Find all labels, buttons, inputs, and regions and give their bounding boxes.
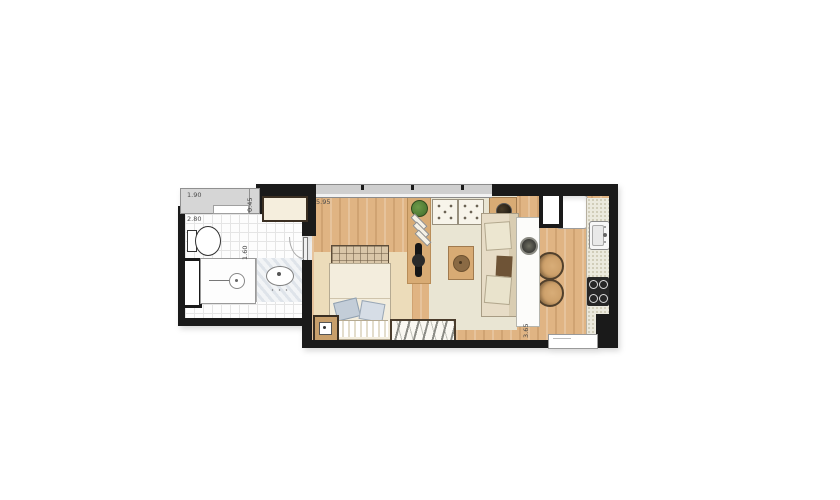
table-dot: [459, 261, 462, 264]
sink-knob: [604, 226, 606, 228]
wall: [178, 318, 312, 326]
burner: [589, 294, 598, 303]
entry-door-line: [553, 338, 571, 339]
sink-faucet: [603, 233, 607, 237]
floor-plan: 1.90 2.80 0.45 1.60 5.95 3.65: [0, 0, 840, 500]
toilet: [195, 226, 221, 256]
shower-tray: [266, 266, 294, 286]
pouf: [432, 199, 458, 225]
wall: [596, 314, 618, 348]
bed-skirt: [332, 320, 388, 337]
tv-stand: [412, 254, 425, 267]
sofa-cushion: [484, 275, 512, 305]
counter-bowl: [520, 237, 538, 255]
tv-console: [407, 196, 431, 284]
lamp-dot: [323, 326, 326, 329]
bar-stool: [536, 279, 564, 307]
headboard: [331, 245, 389, 265]
bathroom-window: [213, 205, 249, 214]
window-mullion: [411, 185, 414, 190]
window-mullion: [461, 185, 464, 190]
bar-counter: [516, 217, 540, 327]
burner: [599, 280, 608, 289]
burner: [589, 280, 598, 289]
closet-cabinet: [262, 196, 308, 222]
sink-knob: [604, 241, 606, 243]
blanket-fold: [330, 298, 390, 299]
shower-drain-icon: [277, 272, 281, 276]
dim-planter-width: 1.90: [187, 192, 201, 199]
window-mullion: [361, 185, 364, 190]
kitchen-sink: [589, 221, 610, 250]
dim-shower-width: 1.60: [242, 246, 249, 260]
bar-stool: [536, 252, 564, 280]
cooktop: [587, 277, 609, 306]
wall: [302, 260, 312, 348]
sofa-cushion: [484, 221, 512, 251]
sofa: [481, 213, 519, 317]
round-side-table: [448, 246, 474, 280]
entry-door: [548, 334, 598, 349]
basin-drain: [235, 279, 238, 282]
kitchen-window-slot: [539, 192, 563, 228]
faucet-line: [209, 280, 231, 281]
shower-box: [256, 258, 303, 302]
dim-planter-depth: 0.45: [247, 198, 254, 212]
dim-living-width: 5.95: [316, 199, 330, 206]
wall: [178, 206, 185, 326]
burner: [599, 294, 608, 303]
dim-kitchen-length: 3.65: [523, 324, 530, 338]
dim-bathroom-width: 2.80: [187, 216, 201, 223]
window-band: [316, 184, 492, 198]
shower-dots-icon: [269, 289, 289, 291]
vanity-counter: [200, 258, 256, 304]
